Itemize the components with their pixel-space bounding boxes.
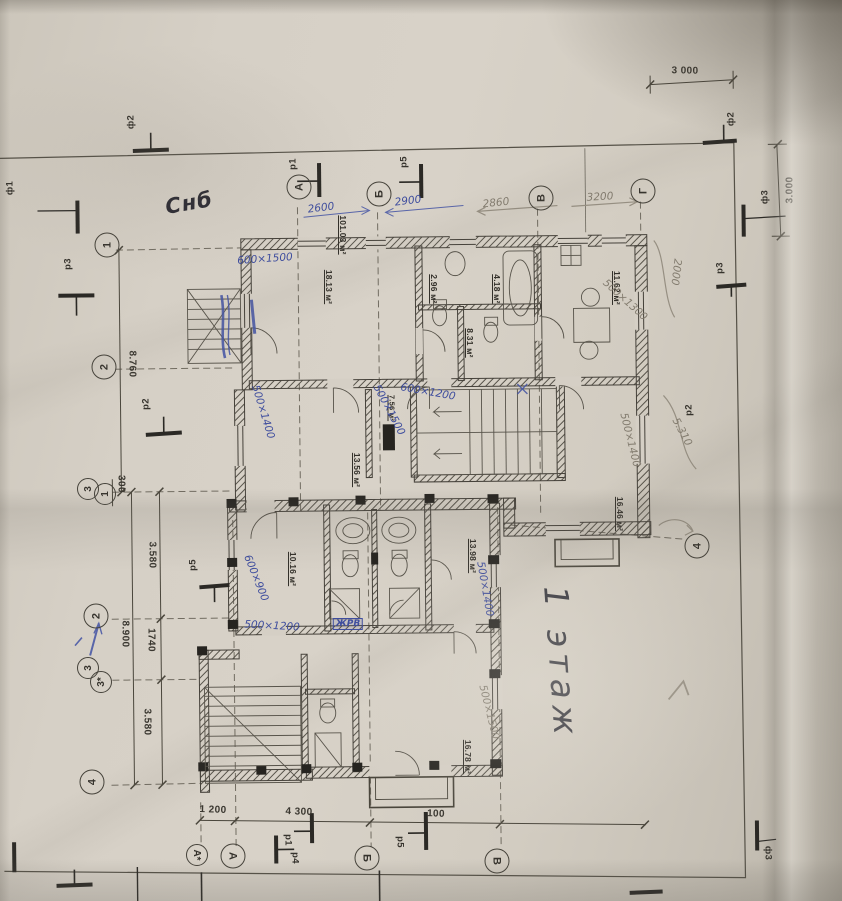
axis-number: 1 [101, 242, 113, 248]
marker-p5-left: р5 [188, 559, 199, 571]
marker-f3-right: ф3 [760, 190, 771, 204]
dim-100: 100 [427, 808, 445, 820]
axis-bubble-3s-lower: 3* [90, 671, 112, 693]
axis-letter: Б [361, 854, 373, 862]
dim-3580-a: 3.580 [147, 541, 158, 568]
room-area-label: 18.13 м² [324, 270, 334, 304]
axis-number: 1 [100, 491, 111, 497]
room-area-label: 10.16 м² [288, 552, 298, 586]
dim-right-height: 3.000 [785, 176, 796, 203]
marker-p2-left: р2 [141, 398, 152, 410]
axis-bubble-v-bottom: В [485, 849, 510, 874]
marker-p5-bottom: р5 [395, 836, 406, 848]
marker-p5-top: р5 [399, 156, 410, 168]
room-area-label: 13.56 м² [352, 453, 362, 487]
dim-1740: 1740 [146, 628, 157, 652]
axis-letter: А [227, 852, 239, 860]
axis-bubble-v-top: В [529, 186, 554, 211]
marker-f2-top: ф2 [126, 115, 137, 129]
marker-p1-bottom: р1 [283, 834, 294, 846]
dim-left-offset: 300 [116, 475, 127, 493]
axis-bubble-a-bottom: А [221, 844, 246, 869]
marker-f1: ф1 [5, 181, 16, 195]
marker-f3-bottom: ф3 [763, 846, 774, 860]
axis-letter: Г [637, 188, 649, 194]
axis-bubble-a-star-bottom: А* [186, 844, 208, 866]
axis-bubble-1-left: 1 [95, 233, 120, 258]
axis-bubble-b-top: Б [367, 182, 392, 207]
dim-4300: 4 300 [285, 806, 312, 818]
dimension-lines [108, 70, 796, 834]
axis-bubble-b-bottom: Б [355, 846, 380, 871]
axis-bubble-2-left: 2 [92, 355, 117, 380]
room-area-label: 8.31 м² [465, 328, 475, 357]
marker-p1-top: р1 [288, 158, 299, 170]
dim-8900: 8.900 [120, 620, 131, 647]
room-area-label: 16.46 м² [615, 497, 625, 531]
scanned-floor-plan-sheet: А Б В Г 1 2 3 1 2 3 3* 4 4 А* А Б В ф2 ф… [0, 0, 842, 901]
axis-number: 3* [96, 677, 107, 686]
axis-number: 4 [691, 543, 703, 549]
axis-number: 4 [86, 779, 98, 785]
marker-f2-right: ф2 [726, 112, 737, 126]
axis-letter: Б [373, 190, 385, 198]
handwritten-dim: 3200 [586, 190, 613, 203]
room-area-label: 2.96 м² [429, 274, 439, 303]
floor-plan-drawing [0, 0, 842, 901]
total-area-label: 101.03 м² [338, 215, 348, 254]
axis-letter: А [293, 183, 305, 191]
axis-bubble-4-right: 4 [685, 534, 710, 559]
marker-p3-left: р3 [63, 258, 74, 270]
dim-1200: 1 200 [199, 804, 226, 816]
axis-letter: В [491, 857, 503, 865]
dim-left-span-upper: 8.760 [127, 350, 138, 377]
marker-p4-bottom: р4 [290, 852, 301, 864]
room-area-label: 4.18 м² [492, 274, 502, 303]
axis-bubble-4-lower: 4 [80, 770, 105, 795]
axis-number: 2 [98, 364, 110, 370]
axis-bubble-a-top: А [287, 175, 312, 200]
room-area-label: 16.78 м² [463, 740, 473, 774]
axis-letter: А* [192, 849, 203, 860]
axis-number: 2 [90, 613, 102, 619]
dim-top-width: 3 000 [671, 65, 698, 76]
dim-3580-b: 3.580 [142, 708, 153, 735]
marker-p2-right: р2 [684, 404, 695, 416]
axis-bubble-g-top: Г [631, 179, 656, 204]
marker-p3-right: р3 [715, 262, 726, 274]
axis-number: 3 [83, 486, 94, 492]
handwritten-tag: ЖРВ [333, 618, 363, 630]
axis-bubble-1b-left: 1 [94, 483, 116, 505]
walls [195, 235, 654, 793]
axis-bubble-2-lower: 2 [84, 604, 109, 629]
axis-number: 3 [83, 665, 94, 671]
axis-letter: В [535, 194, 547, 202]
